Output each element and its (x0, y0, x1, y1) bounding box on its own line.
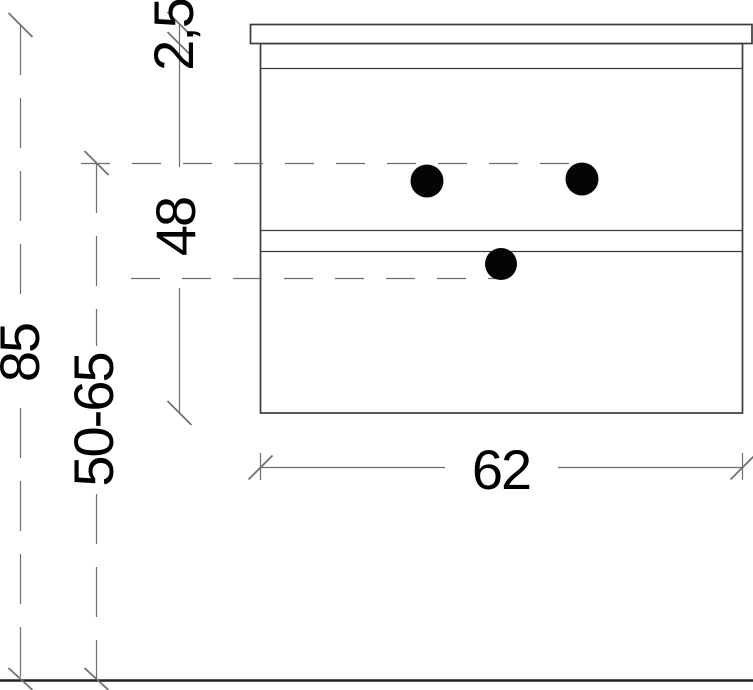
drawing-linework (0, 0, 753, 690)
hole-marker-left (411, 165, 444, 198)
dim-label-overall-height: 85 (0, 324, 48, 382)
dim-label-width: 62 (472, 442, 530, 498)
hole-marker-right (566, 163, 599, 196)
dim-label-body-height: 48 (148, 198, 204, 256)
cabinet-body (261, 44, 743, 414)
hole-marker-center (485, 248, 517, 280)
dim-label-install-height-range: 50-65 (66, 353, 122, 486)
cabinet-outline (261, 44, 743, 414)
countertop (251, 25, 753, 44)
technical-drawing-canvas: 2,5 48 85 50-65 62 (0, 0, 753, 690)
dim-label-top-thickness: 2,5 (146, 0, 202, 71)
